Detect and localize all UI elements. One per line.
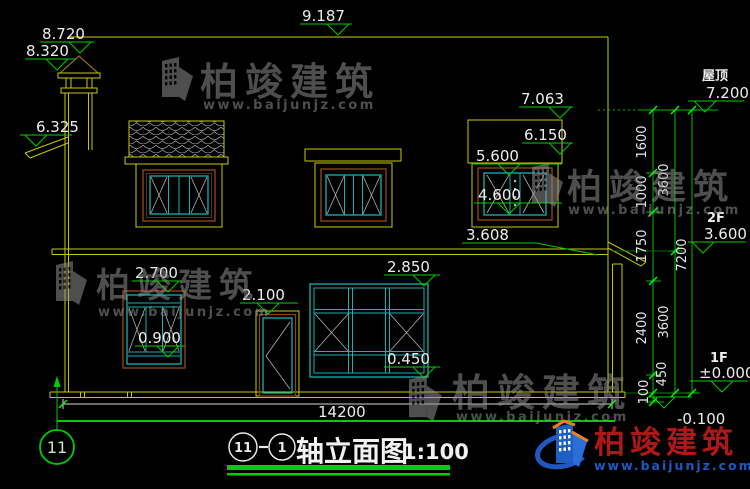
title-name: 轴立面图 — [296, 435, 408, 468]
watermark-brand: 柏竣建筑 — [567, 167, 735, 208]
entry-door — [256, 311, 299, 396]
baijun-logo-icon — [34, 261, 92, 310]
drawing-title: 11 1 轴立面图 1:100 — [227, 433, 469, 476]
watermark-url: www.baijunjz.com — [98, 305, 271, 320]
level-ridge: 9.187 — [302, 7, 345, 25]
cad-elevation-canvas: 9.187 8.720 8.320 6.325 屋顶 7.200 7.063 6… — [0, 0, 750, 489]
marker-ridge — [300, 24, 352, 35]
dim-3600-lower: 3600 — [657, 305, 672, 338]
brand-logo-color: 柏竣建筑 www.baijunjz.com — [534, 421, 750, 473]
axis-bubble-text: 11 — [47, 438, 67, 457]
marker-floor2 — [688, 242, 746, 253]
door-swing-mark — [266, 322, 290, 389]
casement-x-marks — [315, 314, 423, 351]
dim-chain-right: 1600 1000 1750 2400 450 100 3600 3600 72… — [598, 106, 718, 406]
window-2f-middle — [315, 163, 392, 227]
dim-100: 100 — [637, 380, 652, 405]
level-floor1: ±0.000 — [699, 364, 750, 382]
watermark-brand: 柏竣建筑 — [96, 266, 260, 306]
left-eave — [25, 137, 68, 158]
watermark-url: www.baijunjz.com — [456, 410, 629, 425]
title-scale: 1:100 — [402, 440, 469, 464]
marker-floor1 — [690, 381, 748, 392]
dim-1750: 1750 — [635, 229, 650, 262]
level-chimney-cap: 8.720 — [42, 25, 85, 43]
level-eave-left: 6.325 — [36, 118, 79, 136]
watermark-url: www.baijunjz.com — [203, 98, 376, 113]
leader-arrow — [54, 376, 61, 387]
title-axis-from: 11 — [234, 441, 252, 456]
canopy-tiled-2f-left — [125, 121, 228, 164]
brand-url-text: www.baijunjz.com — [594, 458, 750, 473]
window-2f-left — [136, 164, 222, 227]
watermark-url: www.baijunjz.com — [568, 203, 741, 218]
watermark-top: 柏竣建筑 www.baijunjz.com — [140, 57, 380, 113]
baijun-logo-icon — [140, 57, 198, 106]
dim-2400: 2400 — [635, 311, 650, 344]
title-underline-thin — [227, 473, 450, 476]
level-chimney-shoulder: 8.320 — [26, 42, 69, 60]
baijun-logo-icon — [386, 375, 447, 426]
level-dormer-top: 7.063 — [521, 90, 564, 108]
elevation-drawing: 9.187 8.720 8.320 6.325 屋顶 7.200 7.063 6… — [0, 0, 750, 489]
dim-7200: 7200 — [675, 238, 690, 271]
floor-band-2f — [52, 249, 608, 255]
watermark-mid-left: 柏竣建筑 www.baijunjz.com — [34, 261, 271, 320]
watermark-bottom-center: 柏竣建筑 www.baijunjz.com — [386, 371, 632, 427]
marker-dormer-eave — [522, 143, 573, 154]
title-underline-thick — [227, 465, 450, 470]
level-dormer-eave: 6.150 — [524, 126, 567, 144]
watermark-mid-right: 柏竣建筑 www.baijunjz.com — [510, 163, 741, 218]
title-axis-to: 1 — [277, 441, 286, 456]
roof-label: 屋顶 — [702, 69, 728, 84]
level-win2f-head: 5.600 — [476, 147, 519, 165]
dim-1600: 1600 — [635, 125, 650, 158]
level-w1l-sill: 0.900 — [138, 329, 181, 347]
dim-450: 450 — [655, 362, 670, 387]
marker-chimney-shoulder — [25, 59, 76, 70]
canopy-2f-middle — [305, 149, 401, 161]
marker-dormer-top — [519, 107, 573, 118]
dim-14200: 14200 — [318, 403, 366, 421]
level-w1m-head: 2.850 — [387, 258, 430, 276]
level-floor2: 3.600 — [704, 225, 747, 243]
level-roof: 7.200 — [706, 84, 749, 102]
brand-name-text: 柏竣建筑 — [594, 425, 738, 461]
level-w1m-sill: 0.450 — [387, 350, 430, 368]
level-eave-right: 3.608 — [466, 226, 509, 244]
watermark-brand: 柏竣建筑 — [452, 371, 632, 415]
level-win2f-sill: 4.600 — [478, 186, 521, 204]
